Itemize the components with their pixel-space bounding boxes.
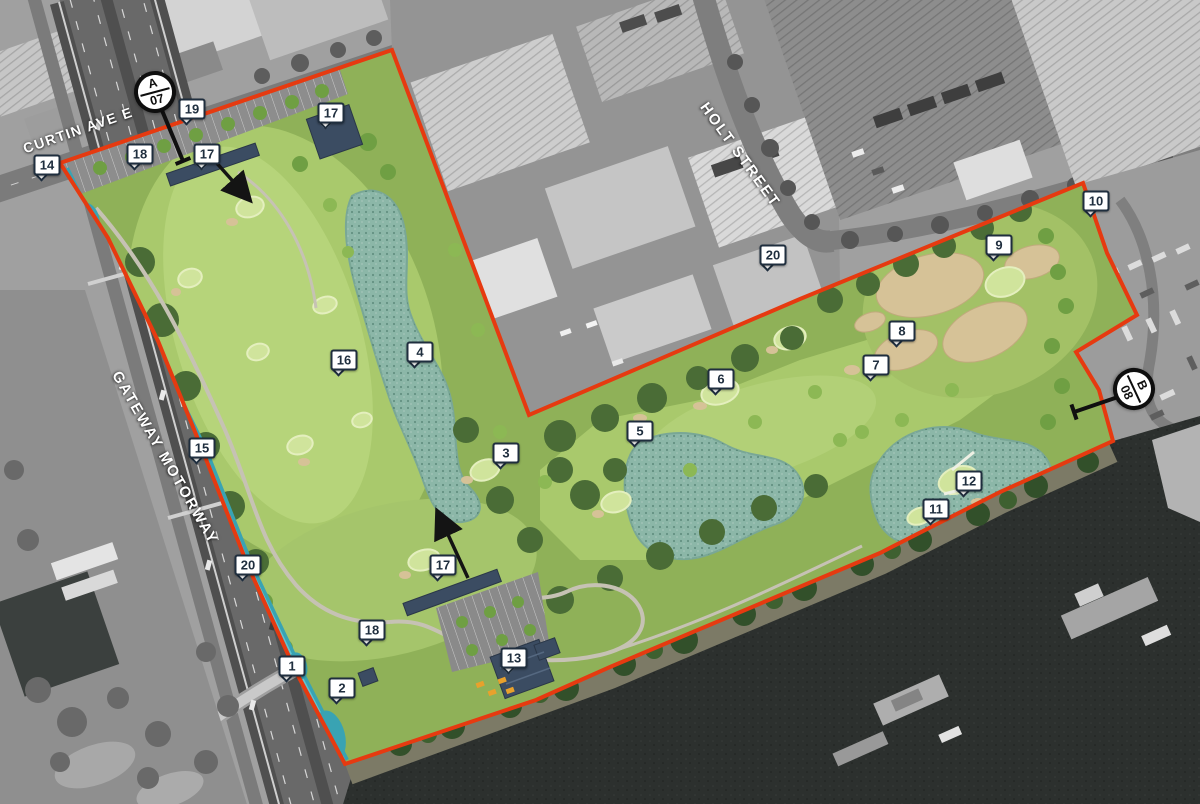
map-pin-3[interactable]: 3 [493, 443, 520, 464]
map-pin-17[interactable]: 17 [430, 555, 457, 576]
map-pin-6[interactable]: 6 [708, 369, 735, 390]
pin-label: 3 [493, 443, 520, 464]
pin-label: 6 [708, 369, 735, 390]
masterplan-map: CURTIN AVE E GATEWAY MOTORWAY HOLT STREE… [0, 0, 1200, 804]
pin-label: 5 [627, 421, 654, 442]
map-pin-19[interactable]: 19 [179, 99, 206, 120]
map-pin-12[interactable]: 12 [956, 471, 983, 492]
map-pin-16[interactable]: 16 [331, 350, 358, 371]
map-pin-8[interactable]: 8 [889, 321, 916, 342]
pin-label: 10 [1083, 191, 1110, 212]
pin-label: 11 [923, 499, 950, 520]
pin-label: 15 [189, 438, 216, 459]
map-pin-2[interactable]: 2 [329, 678, 356, 699]
map-pin-1[interactable]: 1 [279, 656, 306, 677]
map-pin-13[interactable]: 13 [501, 648, 528, 669]
pin-label: 12 [956, 471, 983, 492]
street-label-holt-street: HOLT STREET [696, 99, 783, 210]
annotation-layer: CURTIN AVE E GATEWAY MOTORWAY HOLT STREE… [0, 0, 1200, 804]
pin-label: 17 [318, 103, 345, 124]
pin-label: 4 [407, 342, 434, 363]
pin-label: 13 [501, 648, 528, 669]
section-marker-A[interactable]: A07 [134, 71, 176, 113]
pin-label: 14 [34, 155, 61, 176]
map-pin-5[interactable]: 5 [627, 421, 654, 442]
map-pin-18[interactable]: 18 [127, 144, 154, 165]
section-leader-cap [175, 156, 191, 166]
map-pin-9[interactable]: 9 [986, 235, 1013, 256]
pin-label: 8 [889, 321, 916, 342]
section-marker-B[interactable]: B08 [1113, 368, 1155, 410]
section-leader-line [1073, 395, 1118, 414]
pin-label: 17 [194, 144, 221, 165]
section-number: 07 [149, 92, 166, 108]
map-pin-17[interactable]: 17 [318, 103, 345, 124]
pin-label: 20 [235, 555, 262, 576]
map-pin-17[interactable]: 17 [194, 144, 221, 165]
pin-label: 20 [760, 245, 787, 266]
map-pin-18[interactable]: 18 [359, 620, 386, 641]
pin-label: 16 [331, 350, 358, 371]
pin-label: 17 [430, 555, 457, 576]
map-pin-4[interactable]: 4 [407, 342, 434, 363]
pin-label: 2 [329, 678, 356, 699]
map-pin-20[interactable]: 20 [235, 555, 262, 576]
map-pin-14[interactable]: 14 [34, 155, 61, 176]
street-label-curtin-ave: CURTIN AVE E [21, 104, 135, 157]
map-pin-20[interactable]: 20 [760, 245, 787, 266]
pin-label: 18 [127, 144, 154, 165]
pin-label: 18 [359, 620, 386, 641]
map-pin-7[interactable]: 7 [863, 355, 890, 376]
pin-label: 7 [863, 355, 890, 376]
map-pin-10[interactable]: 10 [1083, 191, 1110, 212]
map-pin-11[interactable]: 11 [923, 499, 950, 520]
pin-label: 9 [986, 235, 1013, 256]
pin-label: 1 [279, 656, 306, 677]
pin-label: 19 [179, 99, 206, 120]
map-pin-15[interactable]: 15 [189, 438, 216, 459]
